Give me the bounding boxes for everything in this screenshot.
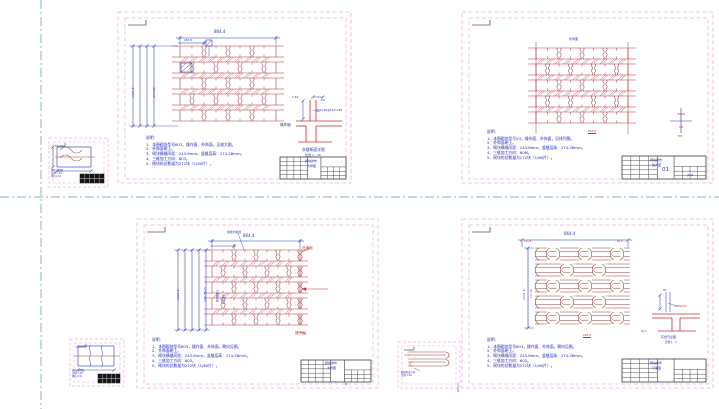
mini3-notes-1: 比例 1:10 <box>401 374 415 377</box>
titleblock-sheetno-tr: 01 <box>662 167 669 173</box>
detail-scale-tl: 比例 1：20 <box>305 153 321 157</box>
notes-tl: 说明： 1、本图砌块型号603，操作面、外饰面，见放大图。2、外饰面朝上。3、砌… <box>146 136 244 167</box>
titleblock-name2-tl: 大样图 <box>307 165 316 168</box>
mini2-notes: 砌块大样图比例 1:10单位:mm <box>72 369 84 378</box>
plot-stamp: 603-v3 <box>457 383 460 392</box>
dim-top-right-red-br: 60.9 <box>617 240 623 243</box>
notes-bl-items-4: 5、砌块的总数量为272块（1/60片）。 <box>152 364 250 369</box>
titleblock-name1-bl: 砌块排布 <box>325 362 337 365</box>
marker-label-tr: M5 <box>678 134 682 138</box>
dim-top-small-label-tl: 243.6 <box>184 38 192 42</box>
notes-tl-items-4: 5、砌块的总数量为272块（1/60片）。 <box>146 162 244 167</box>
cad-paper-space: 864.4 243.6 1371.9 274.38 1.84 60 2Φ6+Φ4… <box>0 0 719 409</box>
notes-br-title: 说明： <box>487 338 585 343</box>
detail-scale-br: 比例 1：5 <box>665 340 677 344</box>
notes-tr-title: 说明： <box>487 130 585 135</box>
notes-tr-items-4: 5、砌块的总数量为272块（1/60片）。 <box>487 156 585 161</box>
detail-rebar-callout-tl: 2Φ6+Φ4@512=2Φ5 <box>316 109 342 112</box>
inner-note-bl: 操作面朝上 <box>215 289 219 302</box>
notes-br-items-4: 5、砌块的总数量为272块（1/60片）。 <box>487 364 585 369</box>
notes-br: 说明： 1、本图砌块型号603，操作面、外饰面，朝向见图。2、外饰面朝上。3、砌… <box>487 338 585 369</box>
detail-dim-w-tl: 60 <box>321 98 325 102</box>
dim-top-label-br: 864.4 <box>564 231 575 236</box>
leader-label-bl: 填缝剂勾缝 <box>227 230 241 234</box>
dim-left-course-bl: 274.38×5 <box>203 287 207 302</box>
dim-left-course-br: 274.38 <box>530 289 533 298</box>
titleblock-name2-br: 平面图 <box>652 367 661 370</box>
detail-dim-br: 60 <box>663 289 666 292</box>
titleblock-name2-tr: 放大图 <box>652 164 661 167</box>
pattern-top-label-tr: 外饰面 <box>569 37 578 41</box>
pattern-bottom-red-tr: 243.6 <box>588 129 596 133</box>
inner-note2-bl: 砂浆填实 <box>221 294 225 304</box>
notes-tl-title: 说明： <box>146 136 244 141</box>
mini1-notes: 砌块大样图比例 1:10单位:mm <box>51 169 63 178</box>
mini3-notes: 砌块断面大样比例 1:10 <box>401 371 415 377</box>
titleblock-name1-tl: 砌块排布 <box>305 160 317 163</box>
detail-caption-br: 灰缝节点图 <box>661 335 676 339</box>
notes-tl-items: 1、本图砌块型号603，操作面、外饰面，见放大图。2、外饰面朝上。3、砌块横缝间… <box>146 143 244 168</box>
dim-top-left-red-br: 121.8 <box>524 240 531 243</box>
dim-top-label-bl: 864.4 <box>243 233 254 238</box>
dim-bottom-red1-br: 243.6 <box>583 333 591 337</box>
dim-bottom-red2-br: 60.9 <box>641 330 647 333</box>
notes-tr-items: 1、本图砌块型号V3，操作面、外饰面，见排列图。2、外饰面朝上。3、砌块横缝间距… <box>487 137 585 162</box>
dim-left-total-tl: 1371.9 <box>131 88 135 99</box>
titleblock-name2-bl: 大样图 <box>327 367 336 370</box>
notes-bl-items: 1、本图砌块型号603，操作面、外饰面，朝向见图。2、外饰面朝上。3、砌块横缝间… <box>152 345 250 370</box>
notes-br-items: 1、本图砌块型号603，操作面、外饰面，朝向见图。2、外饰面朝上。3、砌块横缝间… <box>487 345 585 370</box>
work-face-label-bl: 操作面 <box>295 331 306 336</box>
wall-face-label-bl: 外墙面 <box>302 246 313 251</box>
mini1-notes-2: 单位:mm <box>51 175 63 178</box>
face-label-tl: 操作面 <box>280 123 291 128</box>
detail-dim-h-tl: 1.84 <box>292 95 298 99</box>
titleblock-name1-tr: 砌块排布 <box>650 159 662 162</box>
cad-linework <box>0 0 719 409</box>
dim-left-total-bl: 1371.9 <box>176 290 180 301</box>
dim-left-course-tl: 274.38 <box>152 88 156 99</box>
mini2-notes-2: 单位:mm <box>72 375 84 378</box>
notes-bl: 说明： 1、本图砌块型号603，操作面、外饰面，朝向见图。2、外饰面朝上。3、砌… <box>152 338 250 369</box>
dim-left-total-br: 1371.9 <box>522 290 526 301</box>
titleblock-docno-tr: JS-01 <box>687 174 694 177</box>
notes-tr: 说明： 1、本图砌块型号V3，操作面、外饰面，见排列图。2、外饰面朝上。3、砌块… <box>487 130 585 161</box>
titleblock-name1-br: 砌块排布 <box>650 362 662 365</box>
notes-bl-title: 说明： <box>152 338 250 343</box>
dim-top-label-tl: 864.4 <box>214 29 225 34</box>
detail-rebar-br: 2Φ6@512 <box>675 305 687 308</box>
